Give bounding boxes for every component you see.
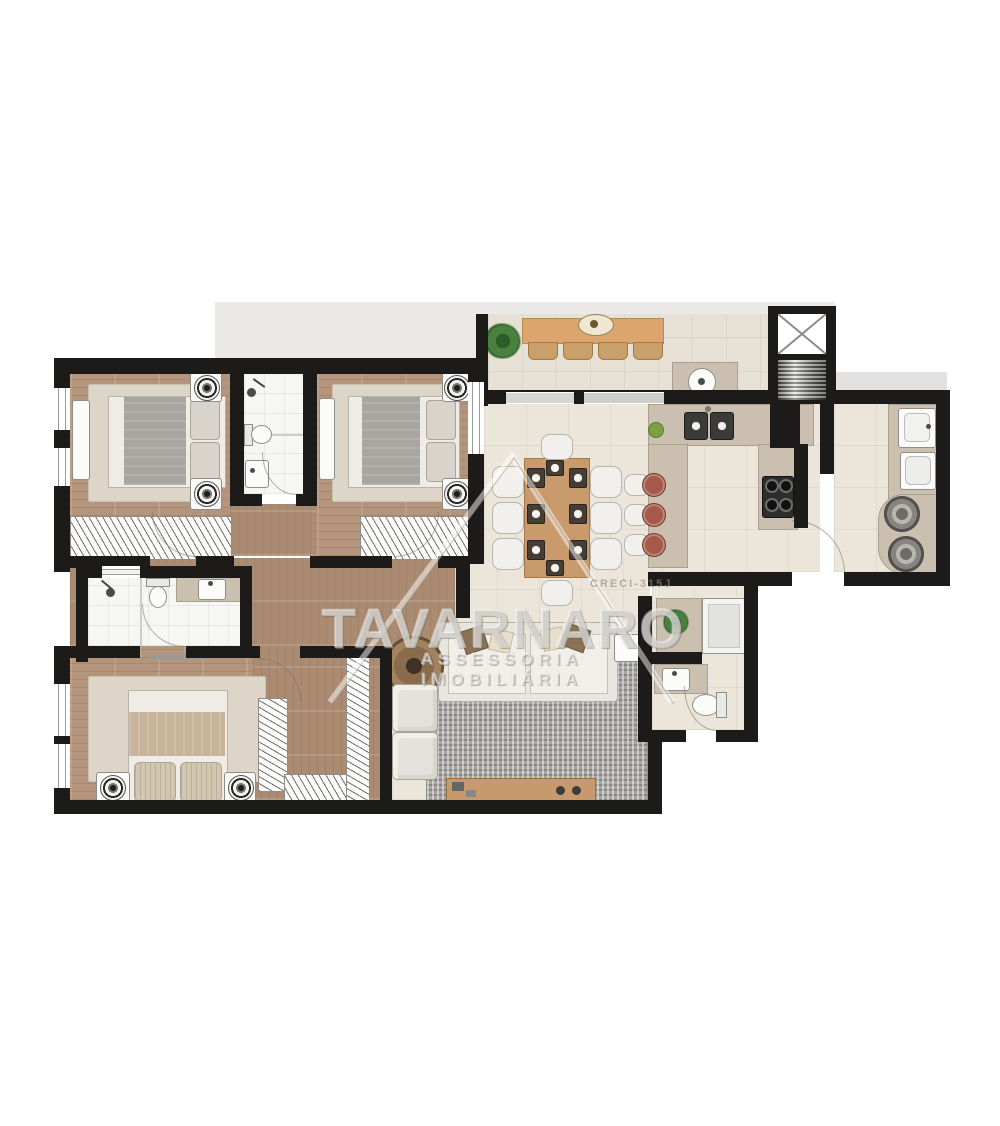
wall-service-right bbox=[936, 390, 950, 586]
bedroom1-blanket bbox=[124, 397, 186, 485]
wall-closet-living bbox=[380, 646, 392, 814]
window-master-a bbox=[54, 684, 70, 736]
service-machine-round-2 bbox=[888, 536, 924, 572]
floor-plan-canvas: TAVARNARO ASSESSORIA IMOBILIÁRIA CRECI-3… bbox=[0, 0, 1000, 1126]
bar-bowl-fruit bbox=[590, 320, 598, 328]
bar-stool-4 bbox=[633, 342, 663, 360]
wall-bath1-bottom-a bbox=[230, 494, 262, 506]
tv-stand-object-4 bbox=[466, 790, 476, 797]
window-master-b bbox=[54, 744, 70, 788]
window-bedroom1-b bbox=[54, 448, 70, 486]
tv-stand-object-3 bbox=[452, 782, 464, 791]
grill-icon bbox=[778, 360, 826, 400]
wall-suite-top-c bbox=[300, 646, 390, 658]
wall-top-bedrooms bbox=[54, 358, 484, 374]
armchair-1 bbox=[392, 684, 438, 732]
bedroom1-pillow-2 bbox=[190, 442, 220, 482]
kitchen-faucet bbox=[705, 406, 711, 412]
wall-bottom bbox=[54, 800, 662, 814]
bar-stool-2 bbox=[563, 342, 593, 360]
bedroom2-pillow-2 bbox=[426, 442, 456, 482]
closet-rack-right bbox=[346, 654, 370, 804]
bar-stool-3 bbox=[598, 342, 628, 360]
bedroom1-lamp-bottom-icon bbox=[194, 481, 220, 507]
powder-shower-stall-inner bbox=[708, 604, 740, 648]
dining-chair-5 bbox=[590, 502, 622, 534]
wall-powder-mid-stub bbox=[652, 652, 702, 664]
wall-bath1-bottom-b bbox=[296, 494, 317, 506]
place-setting-6 bbox=[569, 540, 587, 560]
wall-suite-top-b bbox=[186, 646, 260, 658]
kitchen-sink-right bbox=[710, 412, 734, 440]
balcony-window-glass bbox=[506, 392, 574, 404]
tv-stand-object-2 bbox=[572, 786, 581, 795]
place-setting-3 bbox=[527, 540, 545, 560]
kitchen-green-item bbox=[648, 422, 664, 438]
bedroom2-lamp-bottom-icon bbox=[444, 481, 470, 507]
wall-service-divider bbox=[820, 402, 834, 474]
place-setting-7 bbox=[546, 460, 564, 476]
wall-ensuite-top-b bbox=[140, 566, 252, 578]
hall-between-closets bbox=[230, 504, 317, 556]
place-setting-5 bbox=[569, 504, 587, 524]
bar-stool-1 bbox=[528, 342, 558, 360]
powder-toilet-tank bbox=[716, 692, 727, 718]
place-setting-1 bbox=[527, 468, 545, 488]
master-blanket bbox=[129, 712, 225, 756]
dining-chair-4 bbox=[590, 466, 622, 498]
armchair-2 bbox=[392, 732, 438, 780]
bath1-shower-head-icon bbox=[247, 388, 256, 397]
sofa-cushion-cream-1 bbox=[488, 628, 514, 654]
bedroom1-dresser bbox=[72, 400, 90, 480]
stove-burner-2 bbox=[779, 479, 793, 493]
wall-bath1-right bbox=[303, 372, 317, 504]
window-ensuite bbox=[102, 566, 140, 578]
master-lamp-right-icon bbox=[228, 775, 254, 801]
service-slab-backdrop bbox=[835, 372, 947, 392]
bedroom2-lamp-top-icon bbox=[444, 375, 470, 401]
place-setting-8 bbox=[546, 560, 564, 576]
master-pillow-2 bbox=[180, 762, 222, 802]
wall-bedrooms-bottom-c bbox=[310, 556, 392, 568]
bath1-toilet-bowl-icon bbox=[251, 425, 272, 444]
bedroom2-dresser bbox=[319, 398, 335, 480]
service-machine-round-1 bbox=[884, 496, 920, 532]
stove-burner-1 bbox=[765, 479, 779, 493]
bedroom1-lamp-top-icon bbox=[194, 375, 220, 401]
master-pillow-1 bbox=[134, 762, 176, 802]
wall-kitchen-stub-top bbox=[770, 402, 800, 448]
place-setting-4 bbox=[569, 468, 587, 488]
wall-service-bottom-a bbox=[648, 572, 792, 586]
wall-living-right-lower bbox=[648, 738, 662, 814]
dining-chair-1 bbox=[492, 466, 524, 498]
balcony-sliding-door-glass bbox=[584, 392, 664, 404]
dining-chair-2 bbox=[492, 502, 524, 534]
dining-chair-3 bbox=[492, 538, 524, 570]
window-bedroom1-a bbox=[54, 388, 70, 430]
washing-machine-lid bbox=[905, 456, 931, 485]
wall-powder-left bbox=[638, 596, 652, 742]
elevator-cab bbox=[778, 314, 826, 354]
place-setting-2 bbox=[527, 504, 545, 524]
wall-ensuite-right bbox=[240, 566, 252, 658]
laundry-tank-faucet bbox=[926, 424, 931, 429]
counter-stool-cushion-1 bbox=[642, 473, 666, 497]
window-bedroom2 bbox=[468, 382, 484, 454]
balcony-plant-icon bbox=[486, 324, 520, 358]
wall-kitchen-right bbox=[794, 444, 808, 528]
powder-sink-faucet bbox=[672, 671, 677, 676]
stove-burner-3 bbox=[765, 498, 779, 512]
wall-ensuite-top-a bbox=[76, 566, 102, 578]
dining-chair-6 bbox=[590, 538, 622, 570]
bedroom1-closet-rack bbox=[70, 516, 232, 560]
stove-burner-4 bbox=[779, 498, 793, 512]
dining-chair-8 bbox=[541, 580, 573, 606]
ensuite-sink-faucet bbox=[208, 581, 213, 586]
bedroom1-pillow-1 bbox=[190, 400, 220, 440]
kitchen-sink-left bbox=[684, 412, 708, 440]
bedroom2-pillow-1 bbox=[426, 400, 456, 440]
master-lamp-left-icon bbox=[100, 775, 126, 801]
wall-dining-stub bbox=[456, 556, 470, 618]
powder-hall-plant-icon bbox=[664, 610, 688, 634]
counter-stool-cushion-2 bbox=[642, 503, 666, 527]
elevator-x-icon bbox=[778, 314, 826, 354]
tv-stand-object-1 bbox=[556, 786, 565, 795]
wall-bath1-left bbox=[230, 372, 244, 504]
bedroom2-blanket bbox=[362, 397, 420, 485]
ensuite-divider bbox=[140, 578, 142, 646]
wall-powder-right bbox=[744, 586, 758, 742]
dining-chair-7 bbox=[541, 434, 573, 460]
balcony-sink-drain bbox=[698, 378, 705, 385]
bath1-sink-faucet bbox=[250, 468, 255, 473]
counter-stool-cushion-3 bbox=[642, 533, 666, 557]
wall-service-bottom-b bbox=[844, 572, 950, 586]
